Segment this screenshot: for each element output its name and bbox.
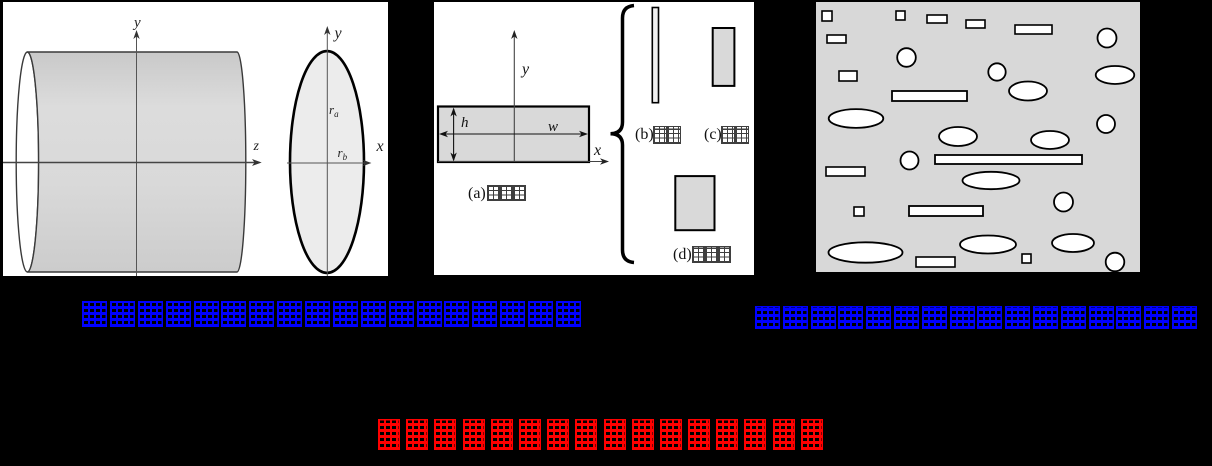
svg-text:y: y	[333, 25, 343, 42]
svg-text:y: y	[520, 61, 530, 78]
svg-text:z: z	[253, 139, 260, 154]
svg-text:w: w	[548, 119, 558, 135]
svg-text:x: x	[376, 138, 384, 155]
svg-text:h: h	[461, 115, 469, 131]
svg-text:y: y	[132, 15, 141, 31]
svg-text:x: x	[593, 142, 601, 159]
